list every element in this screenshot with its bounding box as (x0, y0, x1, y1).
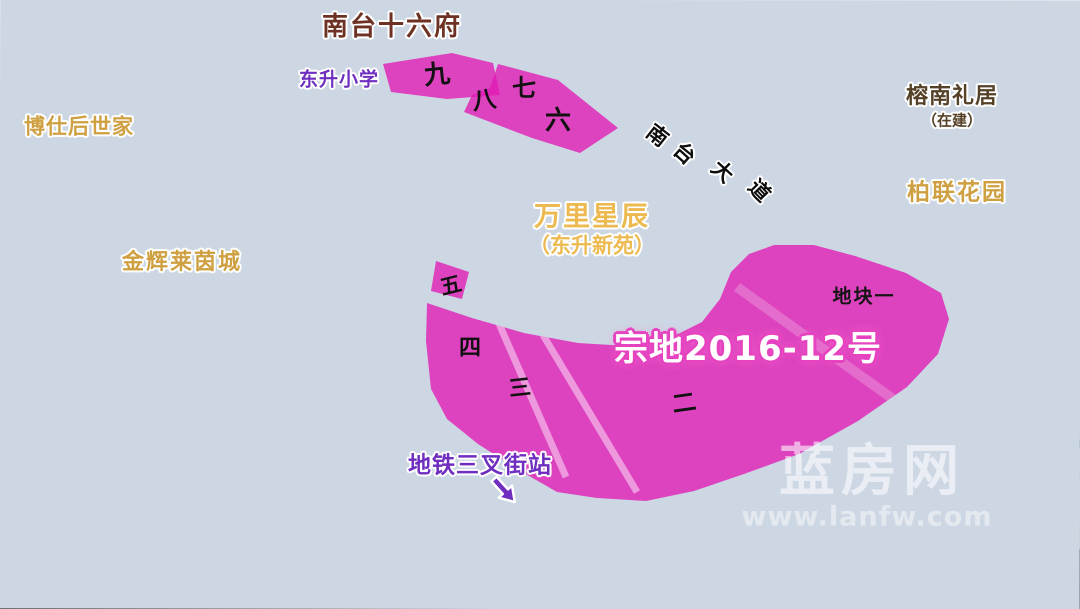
parcel-number-six: 六 (545, 108, 571, 134)
label-boshihou-estate: 博仕后世家 (24, 117, 134, 138)
parcel-number-seven: 七 (512, 76, 536, 100)
watermark-site-name: 蓝房网 (779, 444, 965, 500)
label-jinhui-rhine-city: 金辉莱茵城 (122, 252, 242, 274)
label-block-one: 地块一 (832, 288, 895, 307)
parcel-number-eight: 八 (470, 86, 497, 113)
watermark-url: www.lanfw.com (742, 504, 993, 531)
aerial-parcel-map: 南台十六府 东升小学 博仕后世家 金辉莱茵城 榕南礼居 （在建） 柏联花园 万里… (0, 0, 1080, 609)
label-wanli-xingchen: 万里星辰 (534, 204, 650, 231)
parcel-number-three: 三 (508, 377, 532, 401)
label-wanli-xingchen-alt: （东升新苑） (529, 236, 655, 257)
metro-station-label: 地铁三叉街站 (408, 455, 552, 478)
label-bolian-garden: 柏联花园 (907, 182, 1007, 205)
label-nantai-sixteen-estate: 南台十六府 (322, 14, 462, 40)
label-rongnan-liju: 榕南礼居 (906, 86, 998, 108)
parcel-number-two: 二 (670, 389, 697, 416)
label-dongsheng-primary-school: 东升小学 (299, 71, 379, 90)
parcel-number-nine: 九 (423, 61, 452, 90)
parcel-number-four: 四 (459, 338, 481, 360)
zone-title-2016-12: 宗地2016-12号 (614, 332, 882, 366)
label-rongnan-status: （在建） (922, 114, 982, 129)
